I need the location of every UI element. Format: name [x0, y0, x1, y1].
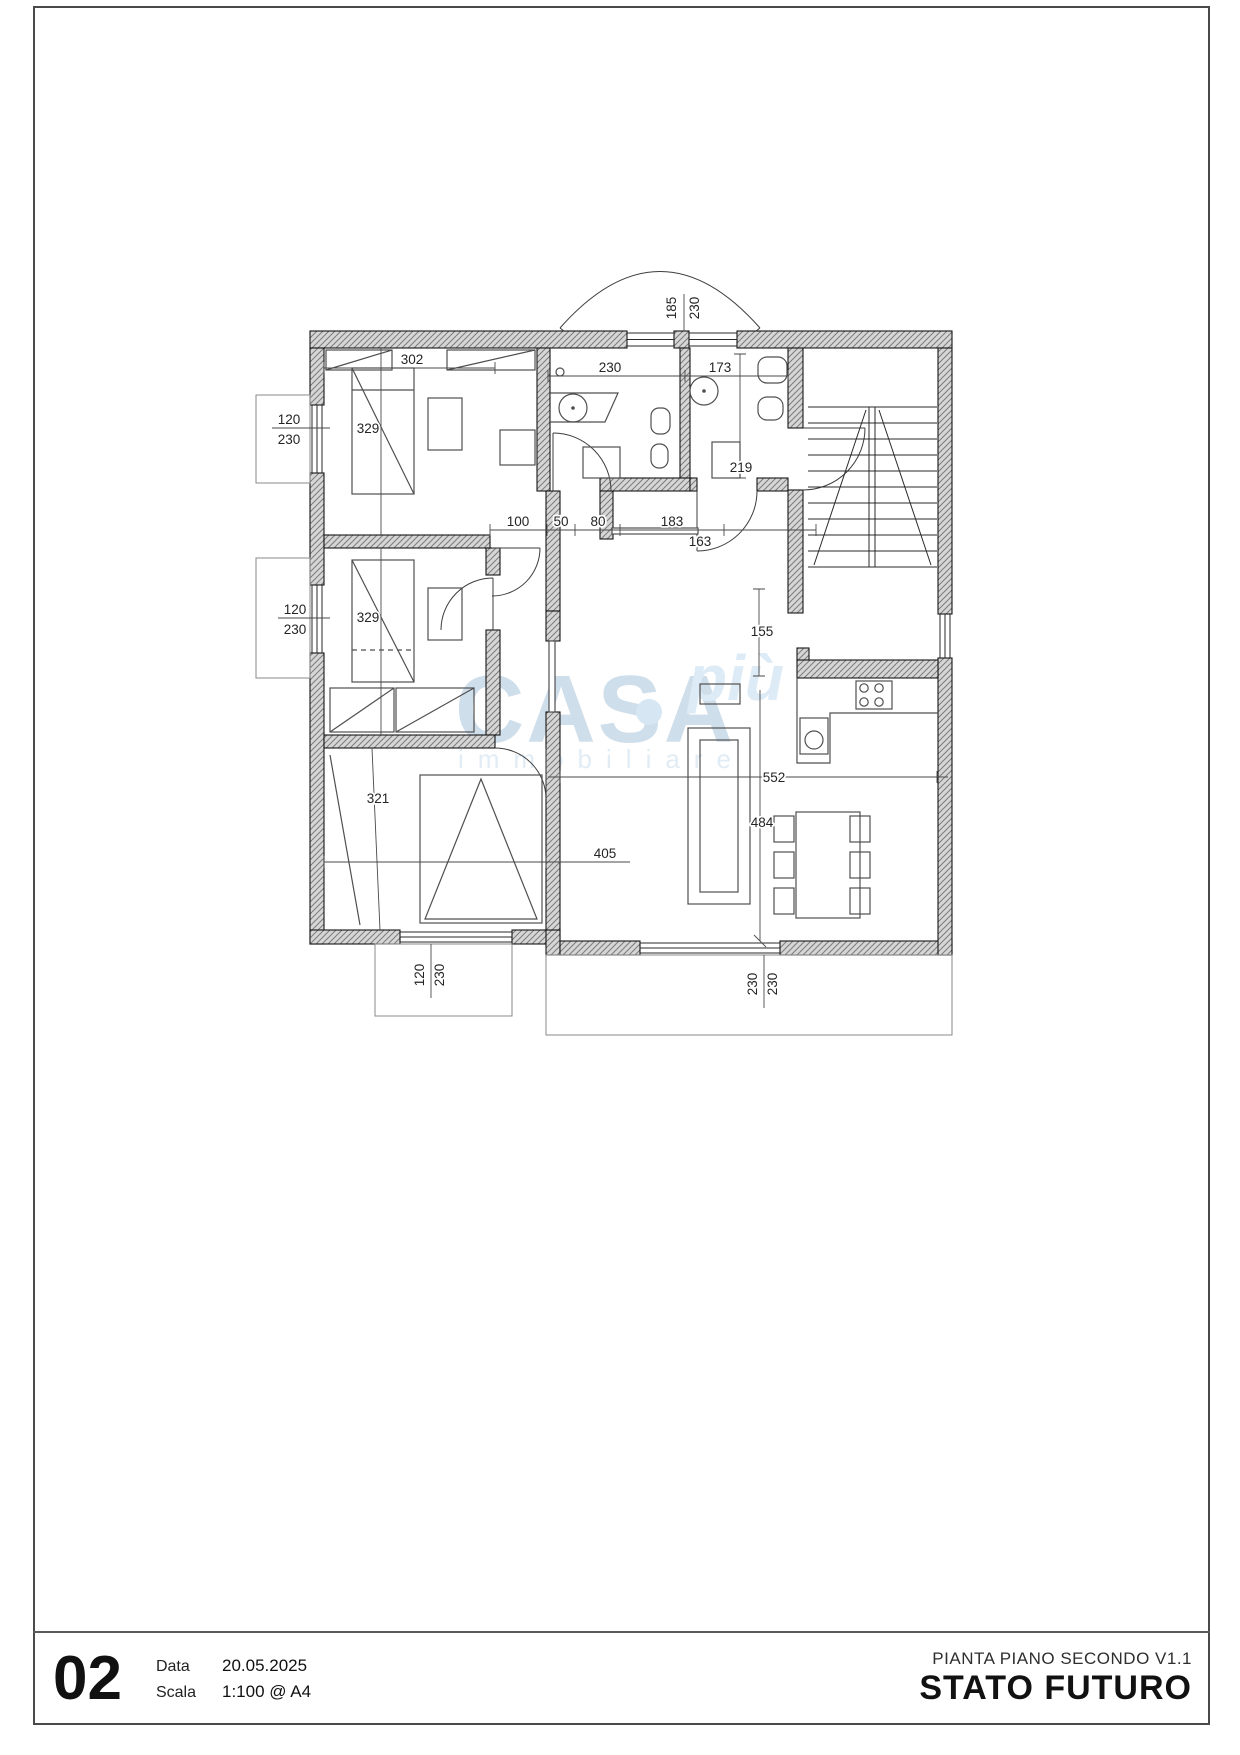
dimension-label-bottom-win-h: 230: [432, 964, 447, 987]
dimension-label-terrace-win-w: 230: [745, 973, 760, 996]
dimension-label-bed1-h: 329: [357, 421, 380, 436]
chair-icon: [774, 816, 794, 842]
dimension-label-bath-w: 230: [599, 360, 622, 375]
dimension-label-left-win2-h: 230: [284, 622, 307, 637]
door-bedroom2: [441, 578, 493, 630]
arch-canopy: [560, 272, 760, 332]
dimension-label-living-w: 552: [763, 770, 786, 785]
dimension-label-living-h: 484: [751, 815, 774, 830]
interior-walls: [324, 348, 938, 930]
wall-segment: [938, 348, 952, 614]
drawing-status: STATO FUTURO: [919, 1669, 1192, 1708]
wardrobe-diagonal: [330, 755, 360, 925]
dimension-window-terrace: 230 230: [745, 955, 780, 1008]
wardrobe-diagonal: [330, 688, 394, 732]
dimension-label-bottom-win-w: 120: [412, 964, 427, 987]
wardrobe-diagonal: [447, 350, 535, 370]
wall-segment: [797, 660, 938, 678]
window-left-1: [312, 405, 322, 473]
wall-segment: [546, 712, 560, 930]
title-fields: Data 20.05.2025 Scala 1:100 @ A4: [156, 1656, 311, 1702]
dimension-window-top: 185 230: [664, 294, 702, 331]
wall-segment: [310, 473, 324, 585]
sink-basin: [805, 731, 823, 749]
staircase: [808, 407, 937, 567]
wall-segment: [780, 941, 952, 955]
wall-segment: [788, 490, 803, 613]
wall-segment: [310, 653, 324, 944]
dimension-label-hall-a: 100: [507, 514, 530, 529]
chair-icon: [774, 888, 794, 914]
washbasin-drain: [702, 389, 706, 393]
dimension-label-top-window-h: 230: [687, 297, 702, 320]
toilet-icon: [651, 408, 670, 434]
sliding-door-living: [549, 641, 555, 712]
washbasin-drain: [571, 406, 575, 410]
wall-segment: [690, 478, 697, 491]
dimension-label-terrace-win-h: 230: [765, 973, 780, 996]
dimension-label-bed1-w: 302: [401, 352, 424, 367]
dresser-icon: [500, 430, 535, 465]
chair-icon: [774, 852, 794, 878]
dimension-window-bottom: 120 230: [412, 944, 447, 998]
wall-segment: [486, 548, 500, 575]
hob-burner: [860, 698, 868, 706]
dimension-label-top-window-w: 185: [664, 297, 679, 320]
wall-segment: [560, 941, 640, 955]
desk-icon: [428, 398, 462, 450]
bed-icon: [420, 775, 542, 923]
wall-segment: [600, 478, 690, 491]
dimensions: 100 50 80 183 163 230 173 219 302 329 32…: [272, 294, 948, 1008]
wall-segment: [324, 535, 490, 548]
wall-segment: [546, 930, 560, 955]
wall-segment: [324, 735, 495, 748]
dimension-label-wc-w: 173: [709, 360, 732, 375]
wall-segment: [546, 491, 560, 611]
wall-segment: [737, 331, 952, 348]
sheet-number: 02: [53, 1648, 122, 1710]
watermark-dot-icon: [636, 699, 662, 725]
bed-triangle: [425, 779, 537, 919]
drawing-sheet: CASA più immobiliare: [0, 0, 1240, 1755]
scale-value: 1:100 @ A4: [222, 1682, 311, 1702]
dimension-label-hall-d: 183: [661, 514, 684, 529]
wall-segment: [674, 331, 689, 348]
wall-segment: [680, 348, 690, 478]
dimension-label-hall-b: 50: [553, 514, 568, 529]
wall-segment: [788, 348, 803, 428]
sliding-door-hall: [612, 528, 698, 534]
bidet-icon: [651, 444, 668, 468]
bidet-icon: [758, 397, 783, 420]
window-bottom-left: [400, 932, 512, 942]
wall-segment: [757, 478, 788, 491]
window-left-2: [312, 585, 322, 653]
washbasin-counter: [550, 393, 618, 422]
wall-segment: [310, 331, 627, 348]
dimension-label-left-win1-w: 120: [278, 412, 301, 427]
drawing-title: PIANTA PIANO SECONDO V1.1: [919, 1649, 1192, 1669]
watermark-accent: più: [686, 642, 784, 714]
hob-burner: [875, 684, 883, 692]
dimension-label-hall-c: 80: [590, 514, 605, 529]
dimension-label-bed2-h: 329: [357, 610, 380, 625]
hob-burner: [860, 684, 868, 692]
wall-segment: [310, 930, 400, 944]
dimension-label-hall-e: 163: [689, 534, 712, 549]
small-fitting-icon: [556, 368, 564, 376]
bathroom-fixtures: [550, 368, 670, 478]
dimension-label-bed3-w: 405: [594, 846, 617, 861]
wardrobe-diagonal: [326, 350, 392, 370]
wall-segment: [546, 611, 560, 641]
toilet-icon: [758, 357, 787, 383]
desk-icon: [428, 588, 462, 640]
dimension-window-left1: 120 230: [272, 412, 330, 447]
window-terrace: [640, 943, 780, 953]
dimension-label-bed3-h: 321: [367, 791, 390, 806]
dimension-label-left-win2-w: 120: [284, 602, 307, 617]
scale-label: Scala: [156, 1684, 196, 1702]
wall-segment: [310, 348, 324, 405]
window-stair-landing: [940, 614, 950, 658]
hob-burner: [875, 698, 883, 706]
outer-walls: [310, 331, 952, 955]
dimension-label-wc-h: 219: [730, 460, 753, 475]
shower-icon: [583, 447, 620, 478]
wall-segment: [537, 348, 550, 491]
dimension-label-landing-h: 155: [751, 624, 774, 639]
title-block-right: PIANTA PIANO SECONDO V1.1 STATO FUTURO: [919, 1649, 1192, 1708]
date-value: 20.05.2025: [222, 1656, 311, 1676]
wall-segment: [938, 658, 952, 955]
bedroom3-furniture: [330, 755, 542, 925]
floor-plan: CASA più immobiliare: [0, 0, 1240, 1755]
door-stairwell: [803, 428, 865, 490]
bedroom2-furniture: [330, 560, 474, 732]
dimension-label-left-win1-h: 230: [278, 432, 301, 447]
title-block: 02 Data 20.05.2025 Scala 1:100 @ A4 PIAN…: [33, 1631, 1210, 1725]
watermark: CASA più immobiliare: [455, 642, 784, 774]
date-label: Data: [156, 1658, 196, 1676]
wall-segment: [486, 630, 500, 735]
